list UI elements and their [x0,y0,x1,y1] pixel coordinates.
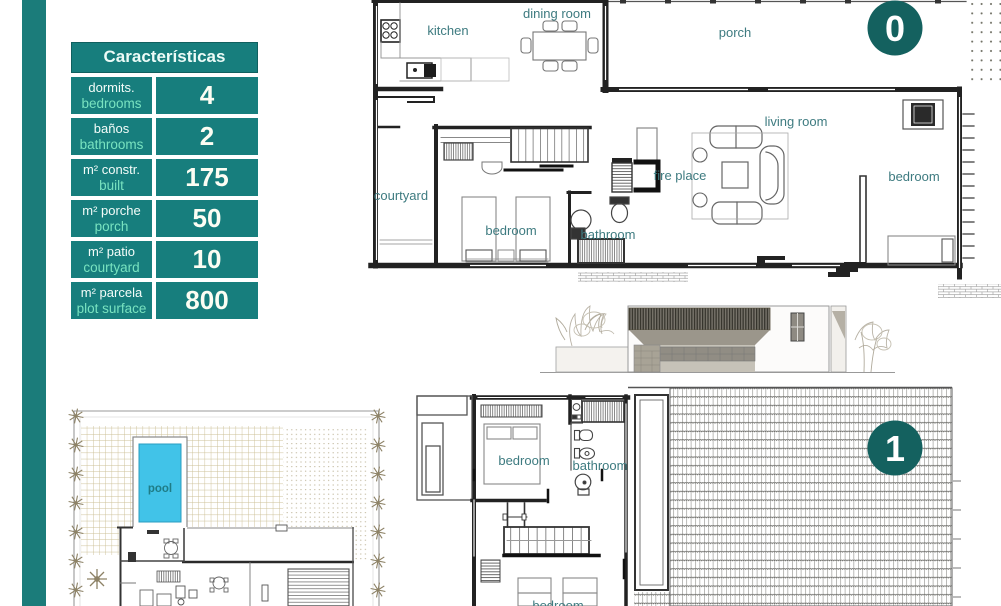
svg-text:living room: living room [765,114,828,129]
svg-text:pool: pool [148,483,172,495]
svg-text:bedroom: bedroom [532,598,583,606]
svg-text:bathroom: bathroom [573,458,628,473]
svg-text:0: 0 [885,8,905,49]
svg-text:bedroom: bedroom [485,223,536,238]
svg-text:1: 1 [885,428,905,469]
svg-text:bathroom: bathroom [581,227,636,242]
svg-text:dining room: dining room [523,6,591,21]
svg-text:bedroom: bedroom [498,453,549,468]
svg-text:kitchen: kitchen [427,23,468,38]
svg-text:fire place: fire place [654,168,707,183]
svg-text:courtyard: courtyard [374,188,428,203]
svg-text:bedroom: bedroom [888,169,939,184]
svg-text:porch: porch [719,25,752,40]
